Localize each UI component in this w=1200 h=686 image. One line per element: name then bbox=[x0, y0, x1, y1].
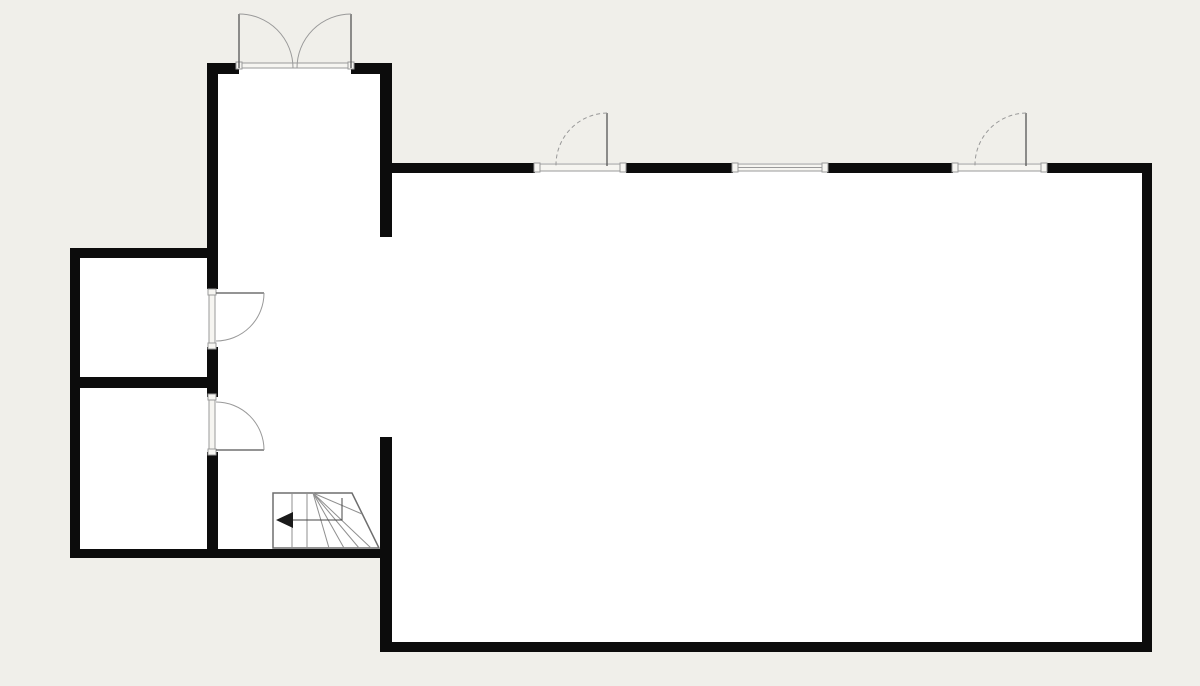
room-door-a-frame-jamb-0 bbox=[208, 289, 216, 295]
window-sill-jamb-1 bbox=[822, 163, 828, 172]
hall-right-wall-upper bbox=[380, 63, 392, 237]
main-left-wall-lower bbox=[380, 437, 392, 652]
entry-door-sill bbox=[239, 63, 351, 68]
west-top-wall bbox=[70, 248, 218, 258]
main-top-wall-3 bbox=[827, 163, 953, 173]
floor-plan-svg bbox=[0, 0, 1200, 686]
room-door-b-frame-jamb-1 bbox=[208, 449, 216, 455]
main-door-b-sill bbox=[955, 164, 1044, 171]
west-middle-wall bbox=[70, 377, 218, 388]
room-upper-left-interior bbox=[70, 248, 218, 388]
room-door-a-frame-jamb-1 bbox=[208, 343, 216, 349]
hallway-interior bbox=[207, 63, 392, 558]
south-west-wall bbox=[70, 549, 392, 558]
west-outer-wall bbox=[70, 248, 80, 558]
main-door-b-sill-jamb-1 bbox=[1041, 163, 1047, 172]
main-door-b-sill-jamb-0 bbox=[952, 163, 958, 172]
main-top-wall-1 bbox=[380, 163, 535, 173]
main-right-wall bbox=[1142, 163, 1152, 652]
window-sill-jamb-0 bbox=[732, 163, 738, 172]
main-door-a-sill-jamb-1 bbox=[620, 163, 626, 172]
main-bottom-wall bbox=[380, 642, 1152, 652]
hall-left-wall-lower bbox=[207, 452, 218, 558]
hall-left-wall-mid bbox=[207, 347, 218, 397]
room-lower-left-interior bbox=[70, 377, 218, 558]
room-door-b-frame bbox=[209, 397, 215, 452]
main-top-wall-2 bbox=[626, 163, 733, 173]
room-door-a-frame bbox=[209, 292, 215, 346]
room-door-b-frame-jamb-0 bbox=[208, 394, 216, 400]
main-door-a-sill-jamb-0 bbox=[534, 163, 540, 172]
floor-plan bbox=[0, 0, 1200, 686]
main-room-interior bbox=[380, 163, 1152, 652]
main-door-a-sill bbox=[537, 164, 623, 171]
main-top-wall-4 bbox=[1047, 163, 1152, 173]
